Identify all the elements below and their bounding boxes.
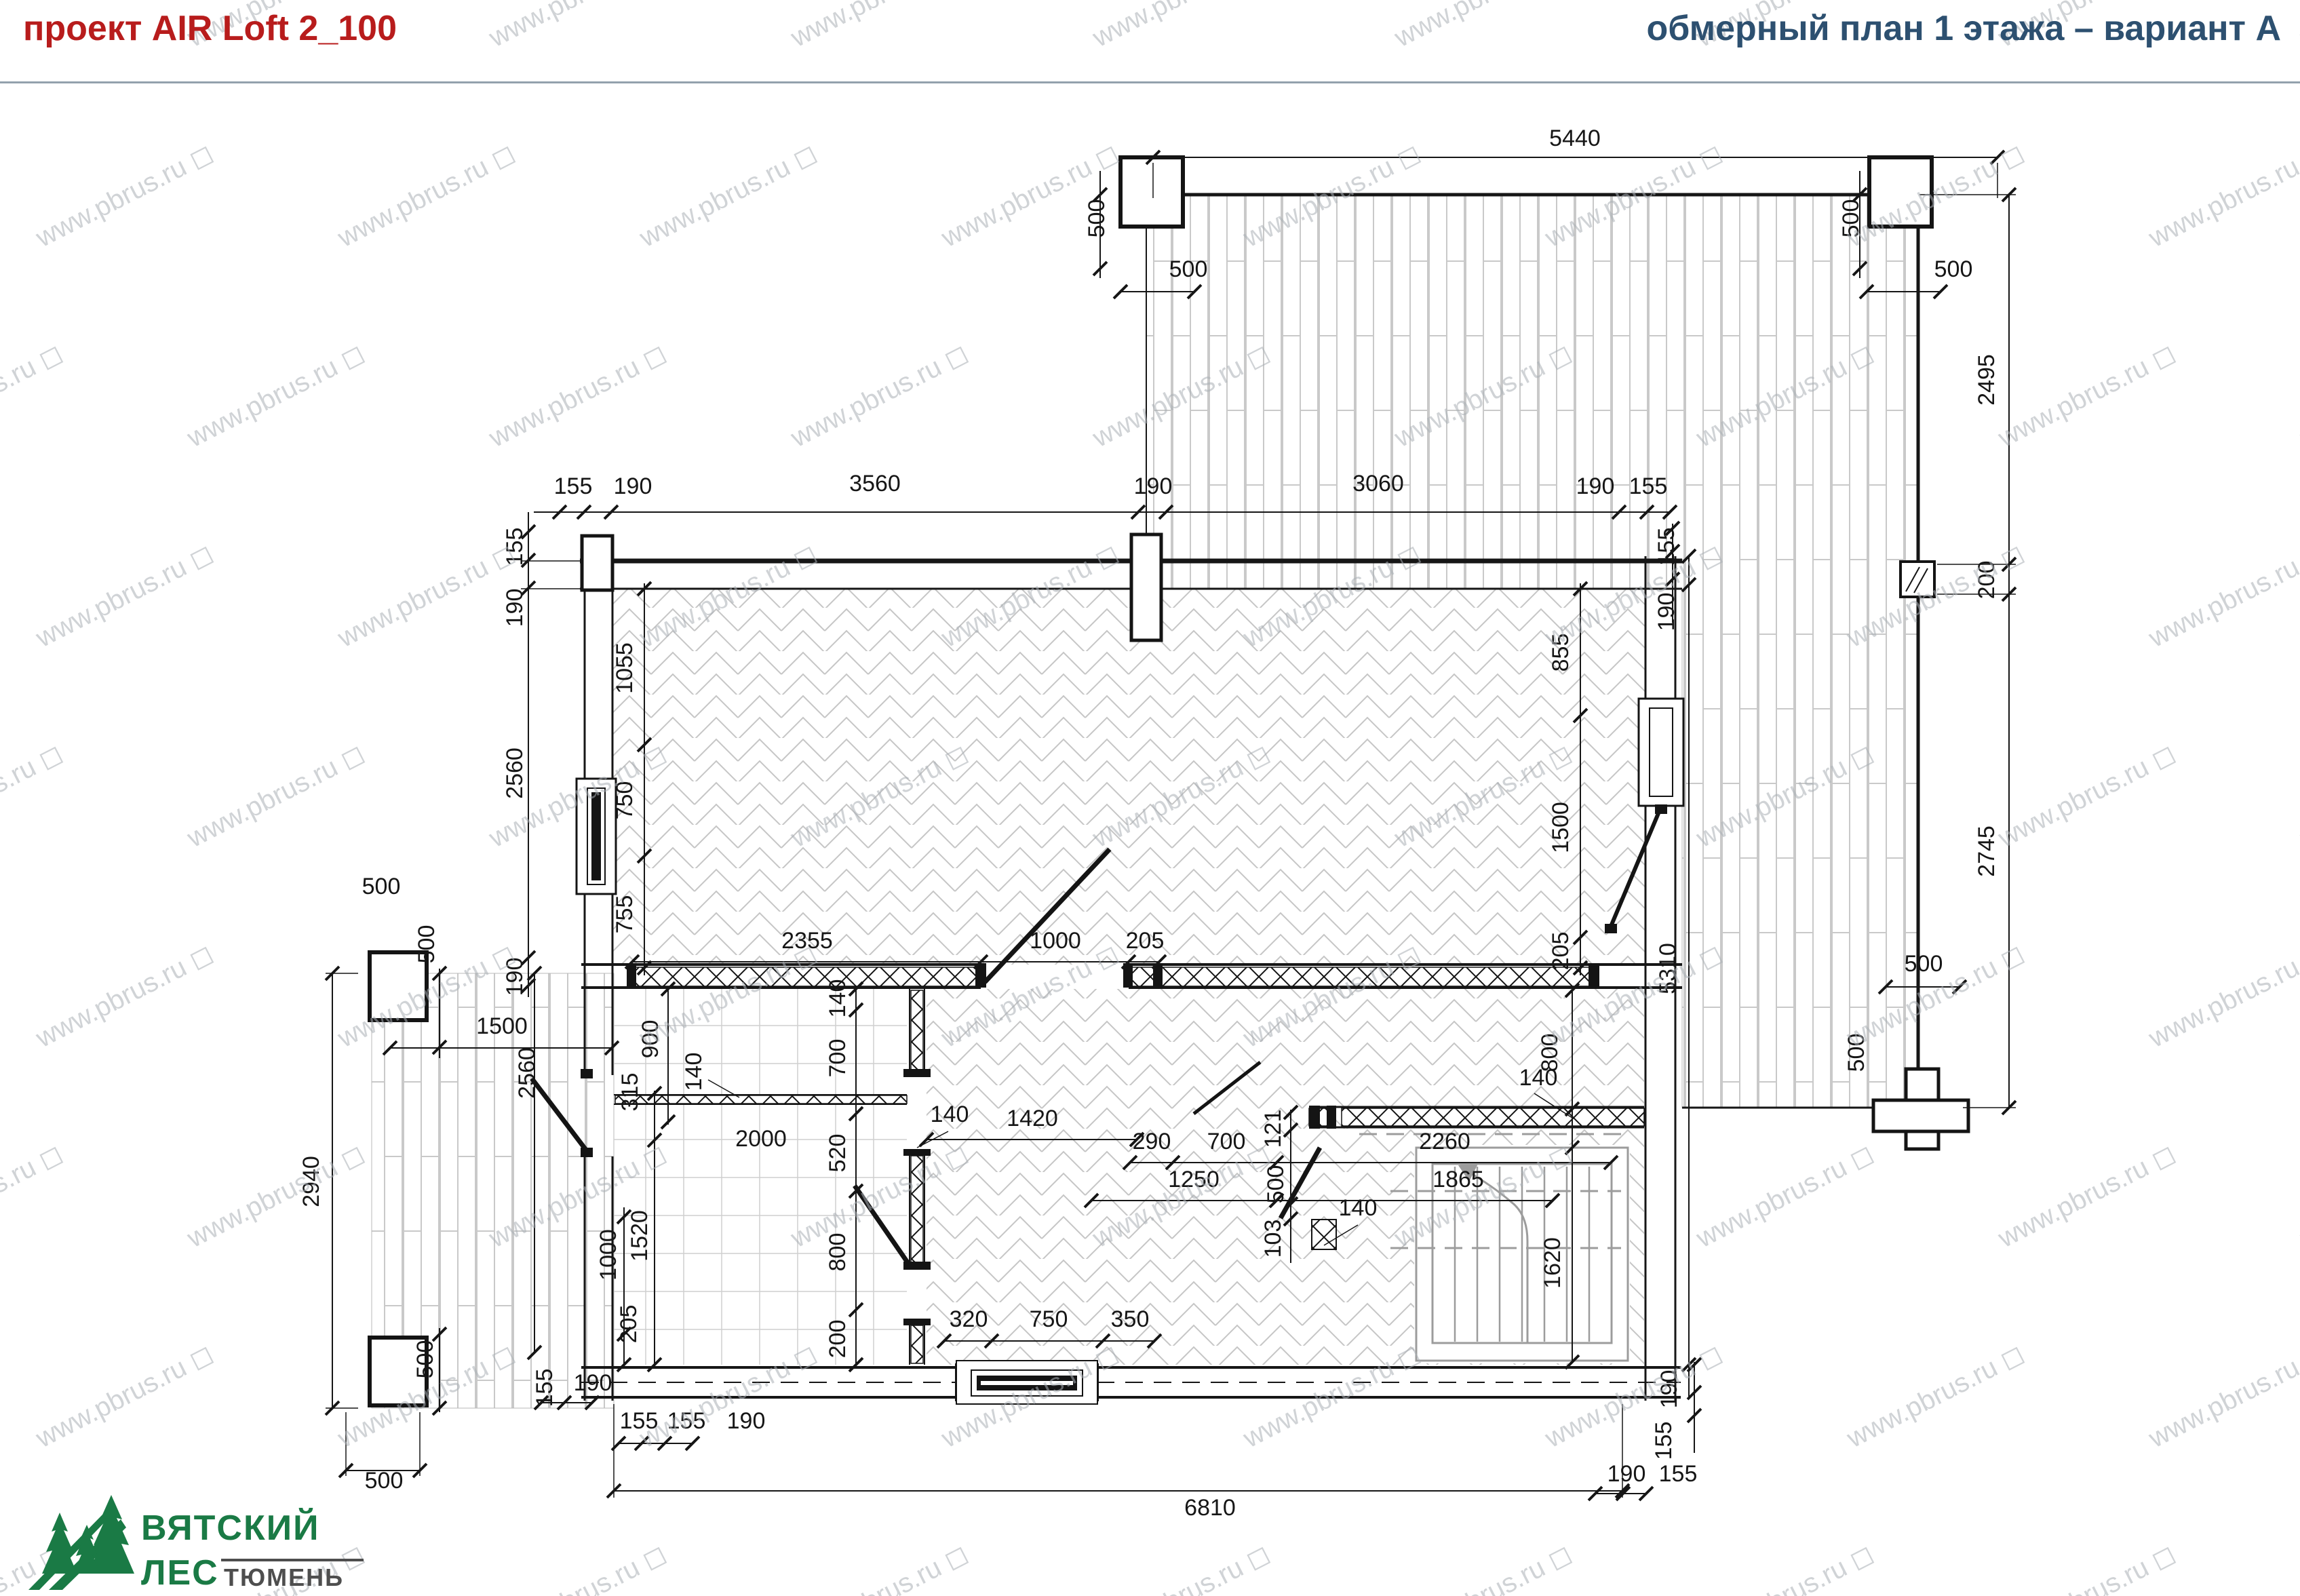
project-title: проект AIR Loft 2_100 [23,8,397,49]
floor-plan-drawing: 5440500500500500249520027451551903560190… [0,0,2300,1596]
dimension-label: 205 [1548,932,1574,971]
dimension-label: 1620 [1540,1237,1565,1289]
watermark-text: www.pbrus.ru ◻ [2295,739,2300,854]
dimension-label: 2495 [1974,354,2000,406]
dimension-label: 140 [1519,1065,1558,1091]
watermark-text: www.pbrus.ru ◻ [1993,739,2180,854]
logo-city: ТЮМЕНЬ [224,1563,344,1591]
logo-word-1: ВЯТСКИЙ [141,1508,319,1548]
watermark-text: www.pbrus.ru ◻ [1691,1139,1878,1254]
dimension-label: 2560 [514,1047,540,1099]
watermark-text: www.pbrus.ru ◻ [785,0,973,53]
watermark-text: www.pbrus.ru ◻ [31,539,218,654]
dimension-label: 500 [412,1340,438,1379]
watermark-text: www.pbrus.ru ◻ [1087,0,1274,53]
dimension-label: 155 [1651,1422,1677,1460]
watermark-text: www.pbrus.ru ◻ [31,939,218,1054]
watermark-text: www.pbrus.ru ◻ [2295,338,2300,454]
dimension-label: 190 [1576,473,1615,499]
dimension-label: 140 [1339,1195,1378,1221]
dimension-label: 500 [1263,1165,1289,1204]
dimension-label: 520 [825,1134,851,1173]
wall-post-top-middle [1131,534,1161,640]
watermark-text: www.pbrus.ru ◻ [2295,1139,2300,1254]
dimension-label: 2560 [502,747,528,799]
dimension-label: 2260 [1419,1129,1470,1154]
watermark-text: www.pbrus.ru ◻ [2143,539,2300,654]
dimension-label: 3060 [1352,471,1404,497]
watermark-text: www.pbrus.ru ◻ [785,338,973,454]
dimension-label: 755 [612,895,638,934]
logo-trees-icon [28,1495,134,1590]
logo-word-2: ЛЕС [141,1553,219,1593]
watermark-text: www.pbrus.ru ◻ [2143,138,2300,254]
dimension-label: 1420 [1007,1106,1058,1131]
watermark-text: www.pbrus.ru ◻ [31,138,218,254]
watermark-text: www.pbrus.ru ◻ [0,1139,67,1254]
page: проект AIR Loft 2_100 обмерный план 1 эт… [0,0,2300,1596]
dimension-label: 1000 [596,1229,621,1281]
dimension-label: 190 [1134,473,1173,499]
dimension-label: 320 [950,1306,988,1332]
dimension-label: 500 [414,925,440,964]
dimension-label: 500 [1084,199,1110,238]
watermark-text: www.pbrus.ru ◻ [1993,1539,2180,1596]
dimension-label: 190 [727,1408,766,1434]
terrace-pillar-bottom-right-h [1873,1100,1968,1131]
dimension-label: 700 [825,1039,851,1078]
plan-title: обмерный план 1 этажа – вариант А [1646,8,2281,49]
watermark-text: www.pbrus.ru ◻ [2143,1339,2300,1454]
watermark-text: www.pbrus.ru ◻ [1691,1539,1878,1596]
terrace-pillar-top-left [1120,157,1183,227]
watermark-text: www.pbrus.ru ◻ [1841,1339,2029,1454]
company-logo: ВЯТСКИЙ ЛЕС ТЮМЕНЬ [24,1490,391,1596]
dimension-label: 290 [1133,1129,1171,1154]
dimension-label: 200 [825,1320,851,1359]
watermark-text: www.pbrus.ru ◻ [0,739,67,854]
dimension-label: 155 [1629,473,1668,499]
dimension-label: 500 [1905,951,1943,977]
dimension-label: 155 [1659,1461,1698,1487]
dimension-label: 1520 [627,1210,652,1262]
watermark-text: www.pbrus.ru ◻ [484,1539,671,1596]
watermark-text: www.pbrus.ru ◻ [2295,1539,2300,1596]
dimension-label: 205 [616,1305,642,1344]
watermark-text: www.pbrus.ru ◻ [1389,1539,1576,1596]
watermark-text: www.pbrus.ru ◻ [0,338,67,454]
dimension-label: 1055 [612,642,638,694]
dimension-label: 121 [1260,1110,1286,1148]
dimension-label: 750 [1030,1306,1068,1332]
dimension-label: 1500 [1548,802,1574,853]
watermark-text: www.pbrus.ru ◻ [2295,0,2300,53]
watermark-text: www.pbrus.ru ◻ [182,338,369,454]
dimension-label: 3560 [849,471,901,497]
dimension-label: 140 [681,1053,707,1091]
dimension-label: 205 [1126,928,1165,954]
watermark-text: www.pbrus.ru ◻ [484,338,671,454]
logo-graphic: ВЯТСКИЙ ЛЕС ТЮМЕНЬ [24,1490,391,1593]
watermark-text: www.pbrus.ru ◻ [484,0,671,53]
dimension-label: 2745 [1974,825,2000,877]
watermark-text: www.pbrus.ru ◻ [1993,1139,2180,1254]
dimension-label: 190 [1607,1461,1646,1487]
watermark-text: www.pbrus.ru ◻ [182,1139,369,1254]
watermark-text: www.pbrus.ru ◻ [785,1539,973,1596]
dimension-label: 103 [1260,1220,1286,1258]
watermark-text: www.pbrus.ru ◻ [182,739,369,854]
dimension-label: 190 [614,473,652,499]
wall-post-top-left [582,536,612,590]
dimension-label: 1500 [476,1013,528,1039]
watermark-text: www.pbrus.ru ◻ [1389,0,1576,53]
dimension-label: 155 [532,1369,558,1407]
watermark-text: www.pbrus.ru ◻ [332,138,520,254]
dimension-label: 155 [554,473,593,499]
dimension-label: 190 [502,589,528,627]
dimension-label: 500 [1934,256,1973,282]
dimension-label: 500 [362,874,401,899]
dimension-label: 140 [825,979,851,1018]
watermark-text: www.pbrus.ru ◻ [332,539,520,654]
dimension-label: 140 [931,1102,969,1127]
watermark-text: www.pbrus.ru ◻ [2143,939,2300,1054]
dimension-label: 315 [617,1073,643,1112]
dimension-label: 2000 [735,1126,787,1152]
watermark-text: www.pbrus.ru ◻ [1993,338,2180,454]
dimension-label: 1000 [1030,928,1081,954]
dimension-label: 500 [1169,256,1208,282]
dimension-label: 6810 [1184,1495,1236,1521]
dimension-label: 190 [574,1370,612,1396]
watermark-text: www.pbrus.ru ◻ [31,1339,218,1454]
dimension-label: 350 [1111,1306,1150,1332]
header-divider [0,81,2300,83]
watermark-text: www.pbrus.ru ◻ [1087,1539,1274,1596]
watermark-text: www.pbrus.ru ◻ [634,138,821,254]
dimension-label: 5440 [1549,125,1601,151]
